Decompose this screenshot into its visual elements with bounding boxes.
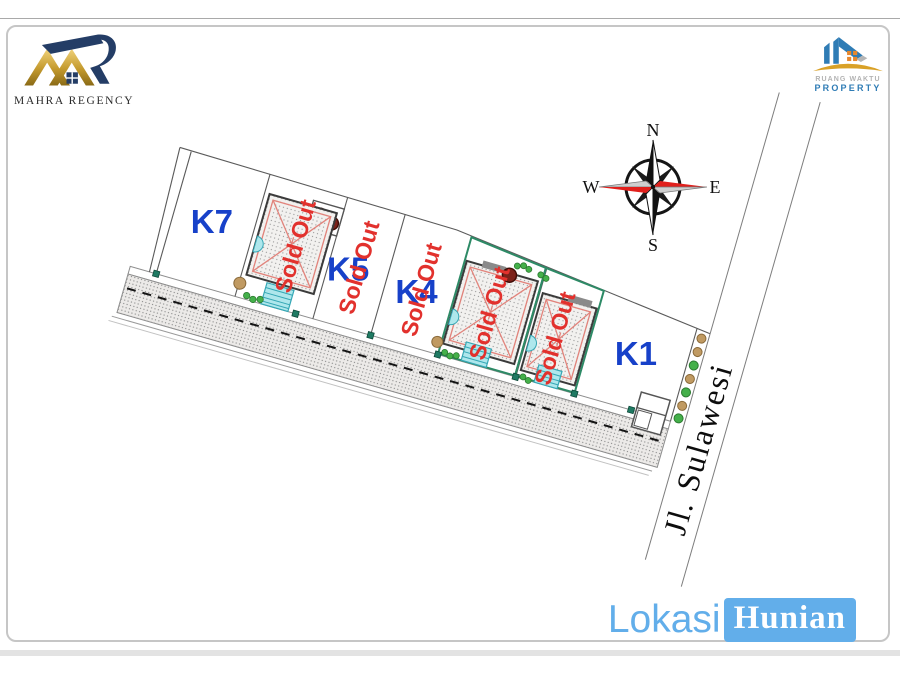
flyer-page: MAHRA REGENCY RUANG WAKTU PROPERTY <box>0 0 900 675</box>
site-plan: K7 K5 K4 K1 Sold Out Sold Out Sold Out S… <box>0 0 900 675</box>
lot-label-k7: K7 <box>191 203 233 240</box>
rotated-plan-group: K7 K5 K4 K1 Sold Out Sold Out Sold Out S… <box>81 0 820 587</box>
compass-rose-icon: N S W E <box>583 120 721 255</box>
footer-word-hunian: Hunian <box>724 598 856 642</box>
compass-east-label: E <box>710 177 721 197</box>
compass-south-label: S <box>648 235 658 255</box>
footer-caption: Lokasi Hunian <box>608 598 856 642</box>
lot-label-k1: K1 <box>615 335 657 372</box>
road-label: Jl. Sulawesi <box>656 359 739 539</box>
compass-west-label: W <box>583 177 600 197</box>
compass-north-label: N <box>647 120 660 140</box>
footer-word-lokasi: Lokasi <box>608 598 721 642</box>
front-road-band <box>108 265 670 477</box>
